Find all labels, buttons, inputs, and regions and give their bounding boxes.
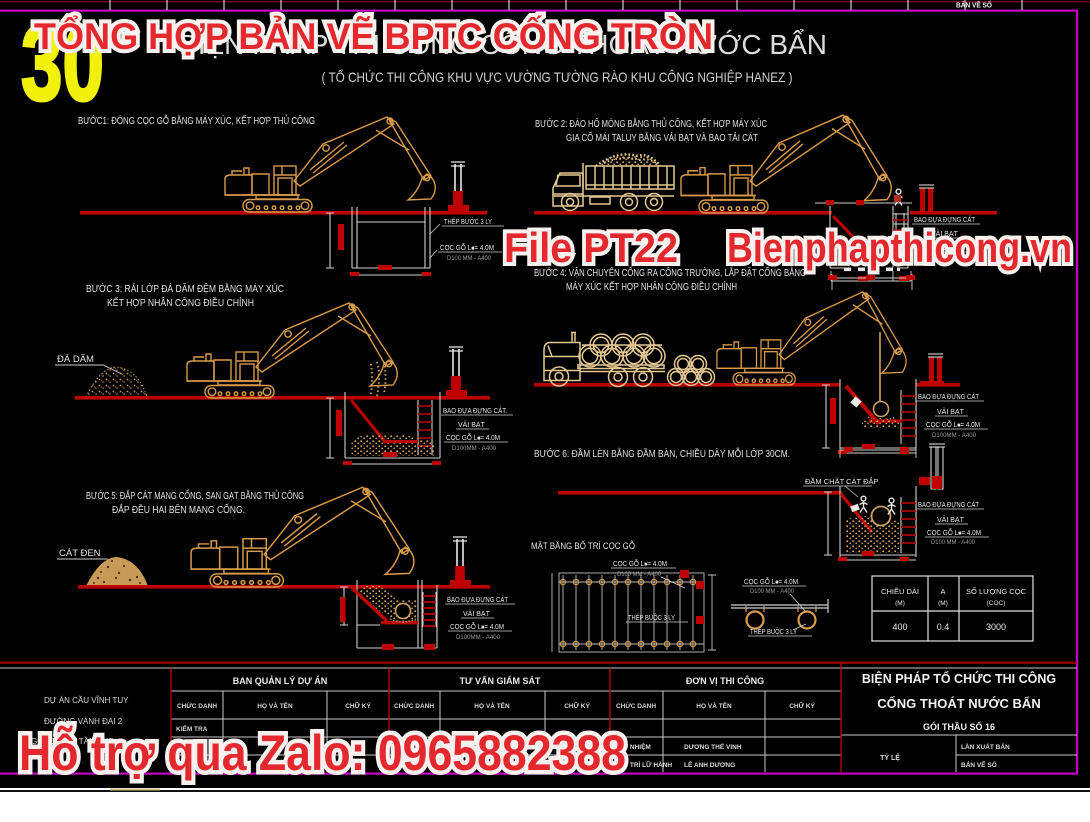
- svg-text:BAO ĐỰA ĐỰNG CÁT: BAO ĐỰA ĐỰNG CÁT: [914, 215, 976, 224]
- svg-text:TƯ VẤN GIÁM SÁT: TƯ VẤN GIÁM SÁT: [460, 676, 541, 686]
- svg-text:CỌC GỖ L■= 4.0M: CỌC GỖ L■= 4.0M: [440, 243, 494, 252]
- svg-text:CỌC GỖ L■= 4.0M: CỌC GỖ L■= 4.0M: [446, 433, 500, 442]
- svg-text:CỌC GỖ L■= 4.0M: CỌC GỖ L■= 4.0M: [450, 622, 504, 631]
- svg-text:GÓI THẦU SỐ 16: GÓI THẦU SỐ 16: [923, 721, 995, 732]
- svg-text:MÁY XÚC KẾT HỢP NHÂN CÔNG ĐIỀU: MÁY XÚC KẾT HỢP NHÂN CÔNG ĐIỀU CHỈNH: [566, 280, 737, 293]
- svg-text:400: 400: [892, 622, 907, 632]
- svg-text:CỌC GỖ L■= 4.0M: CỌC GỖ L■= 4.0M: [927, 528, 981, 537]
- svg-text:MẶT BẰNG BỐ TRÍ CỌC GỖ: MẶT BẰNG BỐ TRÍ CỌC GỖ: [531, 540, 635, 552]
- svg-text:Hỗ trợ qua Zalo: 0965882388: Hỗ trợ qua Zalo: 0965882388: [19, 725, 626, 781]
- svg-text:THÉP BUỘC 3 LY: THÉP BUỘC 3 LY: [750, 627, 797, 636]
- svg-text:VẢI BẠT: VẢI BẠT: [458, 420, 486, 429]
- svg-text:GIA CỐ MÁI TALUY BẰNG VẢI BẠT: GIA CỐ MÁI TALUY BẰNG VẢI BẠT VÀ BAO TẢI…: [566, 130, 758, 144]
- svg-text:CỐNG THOÁT NƯỚC BẨN: CỐNG THOÁT NƯỚC BẨN: [877, 696, 1040, 711]
- svg-text:D100 MM - A400: D100 MM - A400: [617, 571, 661, 578]
- svg-text:BƯỚC 2: ĐÀO HỐ MÓNG BẰNG THỦ C: BƯỚC 2: ĐÀO HỐ MÓNG BẰNG THỦ CÔNG, KẾT H…: [535, 116, 767, 130]
- svg-text:TỶ LỆ: TỶ LỆ: [880, 753, 900, 762]
- svg-text:THÉP BƯỚC 3 LY: THÉP BƯỚC 3 LY: [444, 217, 492, 226]
- svg-text:LÊ ANH DƯƠNG: LÊ ANH DƯƠNG: [684, 760, 735, 769]
- svg-text:VẢI BẠT: VẢI BẠT: [937, 407, 965, 416]
- svg-text:3000: 3000: [986, 622, 1006, 632]
- svg-text:BƯỚC 6: ĐẦM LÈN BẰNG ĐẦM BÀN,: BƯỚC 6: ĐẦM LÈN BẰNG ĐẦM BÀN, CHIỀU DÀY …: [534, 447, 790, 460]
- svg-text:File PT22: File PT22: [504, 224, 678, 271]
- svg-text:BƯỚC1: ĐÓNG CỌC GỖ BẰNG MÁY XÚ: BƯỚC1: ĐÓNG CỌC GỖ BẰNG MÁY XÚC, KẾT HỢP…: [78, 114, 315, 127]
- svg-text:CÁT ĐEN: CÁT ĐEN: [59, 548, 101, 559]
- svg-text:CHỨC DANH: CHỨC DANH: [177, 701, 217, 710]
- svg-text:BIỆN PHÁP TỔ CHỨC THI CÔNG: BIỆN PHÁP TỔ CHỨC THI CÔNG: [862, 671, 1056, 686]
- svg-text:D100MM - A400: D100MM - A400: [452, 445, 496, 452]
- svg-text:BAO ĐỰA ĐỰNG CÁT: BAO ĐỰA ĐỰNG CÁT: [918, 392, 980, 401]
- svg-text:TỔNG HỢP BẢN VẼ BPTC CỐNG TRÒN: TỔNG HỢP BẢN VẼ BPTC CỐNG TRÒN: [34, 14, 713, 57]
- svg-text:HỌ VÀ TÊN: HỌ VÀ TÊN: [474, 701, 510, 710]
- svg-text:VẢI BẠT: VẢI BẠT: [937, 515, 965, 524]
- svg-text:BAO ĐỰA ĐỰNG CÁT: BAO ĐỰA ĐỰNG CÁT: [447, 595, 509, 604]
- svg-text:SỐ LƯỢNG CỌC: SỐ LƯỢNG CỌC: [966, 586, 1027, 596]
- svg-text:ĐẮP ĐỀU HAI BÊN MANG CỐNG.: ĐẮP ĐỀU HAI BÊN MANG CỐNG.: [112, 502, 245, 516]
- svg-text:CHỮ KÝ: CHỮ KÝ: [789, 701, 815, 710]
- svg-text:ĐÁ DĂM: ĐÁ DĂM: [57, 354, 94, 365]
- svg-text:CHỮ KÝ: CHỮ KÝ: [345, 701, 371, 710]
- svg-text:Bienphapthicong.vn: Bienphapthicong.vn: [727, 224, 1072, 271]
- svg-text:ĐƠN VỊ THI CÔNG: ĐƠN VỊ THI CÔNG: [686, 675, 764, 686]
- svg-text:0.4: 0.4: [937, 622, 950, 632]
- svg-text:BAO ĐỰA ĐỰNG CÁT.: BAO ĐỰA ĐỰNG CÁT.: [443, 406, 507, 415]
- svg-text:HỌ VÀ TÊN: HỌ VÀ TÊN: [696, 701, 732, 710]
- svg-text:CỌC GỖ L■= 4.0M: CỌC GỖ L■= 4.0M: [926, 420, 980, 429]
- svg-text:A: A: [940, 587, 945, 596]
- svg-text:BƯỚC 5: ĐẮP CÁT MANG CỐNG, SAN: BƯỚC 5: ĐẮP CÁT MANG CỐNG, SAN GẠT BẰNG …: [86, 488, 304, 502]
- svg-text:CHỨC DANH: CHỨC DANH: [394, 701, 434, 710]
- svg-text:ĐẦM CHẶT CÁT ĐẮP: ĐẦM CHẶT CÁT ĐẮP: [805, 476, 878, 486]
- svg-text:CHỨC DANH: CHỨC DANH: [616, 701, 656, 710]
- svg-text:KẾT HỢP NHÂN CÔNG ĐIỀU CHỈNH: KẾT HỢP NHÂN CÔNG ĐIỀU CHỈNH: [107, 296, 254, 309]
- svg-text:D100MM - A400: D100MM - A400: [456, 634, 500, 641]
- svg-text:THÉP BUỘC 3 LY: THÉP BUỘC 3 LY: [628, 613, 675, 622]
- svg-text:(CỌC): (CỌC): [987, 600, 1006, 607]
- svg-text:( TỔ CHỨC THI CÔNG KHU VỰC VƯỜ: ( TỔ CHỨC THI CÔNG KHU VỰC VƯỜNG TƯỜNG R…: [322, 68, 793, 85]
- svg-text:BAO ĐỰA ĐỰNG CÁT: BAO ĐỰA ĐỰNG CÁT: [918, 500, 980, 509]
- svg-text:D100 MM - A400: D100 MM - A400: [750, 588, 794, 595]
- svg-text:BAN QUẢN LÝ DỰ ÁN: BAN QUẢN LÝ DỰ ÁN: [233, 675, 327, 686]
- svg-text:CỌC GỖ L■= 4.0M: CỌC GỖ L■= 4.0M: [744, 577, 798, 586]
- svg-text:BƯỚC 3: RẢI LỚP ĐÁ DĂM ĐỆM BẰN: BƯỚC 3: RẢI LỚP ĐÁ DĂM ĐỆM BẰNG MÁY XÚC: [86, 282, 284, 295]
- svg-text:CỌC GỖ L■= 4.0M: CỌC GỖ L■= 4.0M: [613, 559, 667, 568]
- svg-text:D100 MM - A400: D100 MM - A400: [447, 255, 491, 262]
- svg-text:D100MM - A400: D100MM - A400: [932, 432, 976, 439]
- svg-text:VẢI BẠT: VẢI BẠT: [463, 609, 491, 618]
- svg-text:(M): (M): [938, 600, 948, 607]
- svg-text:HỌ VÀ TÊN: HỌ VÀ TÊN: [257, 701, 293, 710]
- svg-text:(M): (M): [895, 600, 905, 607]
- svg-text:CHIỀU DÀI: CHIỀU DÀI: [881, 586, 919, 596]
- svg-text:D100 MM - A400: D100 MM - A400: [931, 539, 975, 546]
- svg-text:DỰ ÁN CẦU VĨNH TUY: DỰ ÁN CẦU VĨNH TUY: [44, 695, 129, 705]
- svg-text:CHỮ KÝ: CHỮ KÝ: [564, 701, 590, 710]
